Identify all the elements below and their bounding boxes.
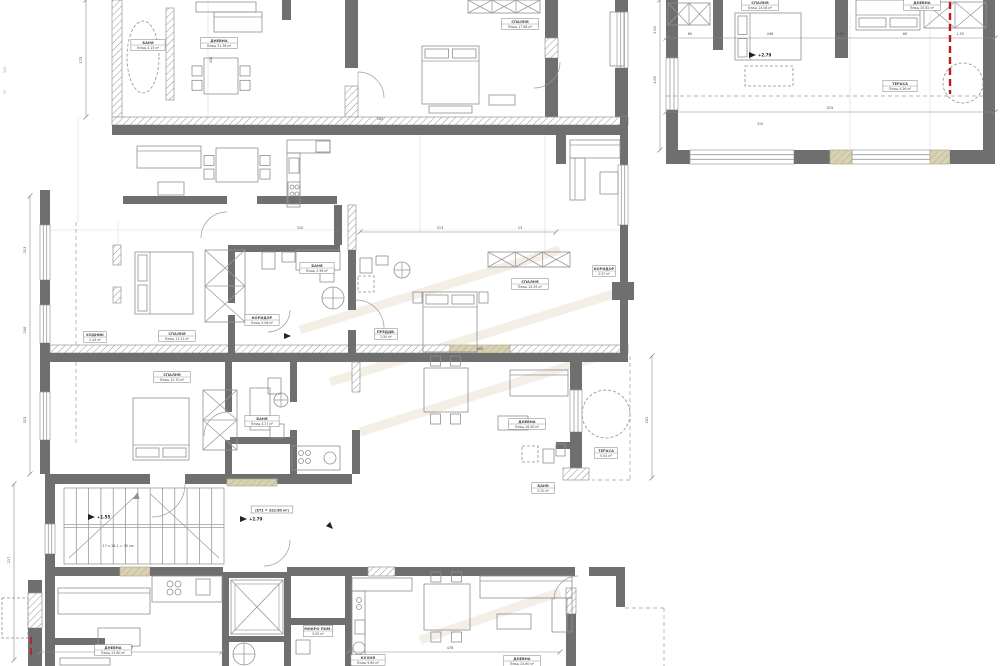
wall-solid xyxy=(290,430,297,474)
room-label: БАНЯПлощ 3.96 м² xyxy=(300,263,334,274)
sofa-symbol xyxy=(214,12,262,32)
svg-text:Площ 14.08 м²: Площ 14.08 м² xyxy=(748,6,773,10)
wall-solid xyxy=(28,580,42,593)
table-and-chairs-symbol xyxy=(192,58,250,94)
circle-symbol xyxy=(324,452,336,464)
dimension-line xyxy=(346,650,563,655)
window-symbol xyxy=(617,12,628,68)
window-symbol xyxy=(666,58,678,110)
dimension-text: 310 xyxy=(297,226,304,230)
appliance-circle-icon xyxy=(322,287,344,309)
wall-solid xyxy=(348,250,356,310)
svg-text:БАНЯ: БАНЯ xyxy=(537,484,549,488)
window-symbol xyxy=(40,392,50,440)
wall-solid xyxy=(556,134,566,164)
dimension-text: 201 xyxy=(645,417,649,424)
appliance-circle-icon xyxy=(394,262,410,278)
furniture-outline xyxy=(158,182,184,195)
svg-text:17 x 18.1 = 30 см: 17 x 18.1 = 30 см xyxy=(103,544,134,548)
door-swing-arc xyxy=(201,212,227,238)
svg-text:ПРЕДДВ.: ПРЕДДВ. xyxy=(377,330,396,334)
svg-text:ДНЕВНА: ДНЕВНА xyxy=(104,646,121,650)
svg-text:ДНЕВНА: ДНЕВНА xyxy=(210,39,227,43)
svg-text:Площ 14.55 м²: Площ 14.55 м² xyxy=(518,285,543,289)
svg-text:Площ 9.80 м²: Площ 9.80 м² xyxy=(357,661,380,665)
bed-symbol xyxy=(135,252,193,314)
furniture-outline xyxy=(289,158,299,173)
svg-text:СПАЛНЯ: СПАЛНЯ xyxy=(168,332,185,336)
level-marker: +1.55 xyxy=(88,514,110,520)
wall-solid xyxy=(713,0,723,50)
svg-text:КОРИДОР: КОРИДОР xyxy=(252,316,273,320)
sofa-symbol xyxy=(570,140,620,158)
dimension-text: 240 xyxy=(23,327,27,334)
svg-text:Площ 20.82 м²: Площ 20.82 м² xyxy=(910,6,935,10)
dimension-line xyxy=(664,110,998,115)
wall-hatched xyxy=(50,345,450,353)
furniture-outline xyxy=(429,106,472,113)
wall-solid xyxy=(50,353,628,362)
wall-hatched-tan xyxy=(830,150,852,164)
room-label: ТЕРАСАПлощ 4.26 м² xyxy=(883,81,917,92)
circle-symbol xyxy=(175,589,181,595)
dimension-text: 525 xyxy=(827,106,834,110)
wall-solid xyxy=(666,150,690,164)
floor-plan-drawing: 604481.80601.355253132403232172012174783… xyxy=(0,0,1000,666)
wall-solid xyxy=(983,0,995,150)
room-label: СПАЛНЯПлощ 14.55 м² xyxy=(512,279,549,290)
room-label: КУХНЯПлощ 9.80 м² xyxy=(351,655,385,666)
wall-solid xyxy=(352,430,360,474)
bed-symbol xyxy=(133,398,189,460)
furniture-outline xyxy=(355,620,365,634)
circle-symbol xyxy=(299,451,304,456)
room-label: МОКРО ПОМ.3.50 м² xyxy=(303,626,333,637)
wall-solid xyxy=(566,614,576,666)
svg-text:ТЕРАСА: ТЕРАСА xyxy=(598,449,614,453)
window-symbol xyxy=(40,305,50,343)
furniture-outline xyxy=(196,579,210,595)
furniture-outline xyxy=(600,172,618,194)
dimension-text: 120 xyxy=(3,67,7,73)
svg-text:283: 283 xyxy=(377,117,383,121)
appliance-circle-icon xyxy=(233,643,255,665)
svg-text:БАНЯ: БАНЯ xyxy=(142,41,154,45)
wall-hatched-tan xyxy=(227,479,277,486)
room-label: БАНЯПлощ 4.17 м² xyxy=(245,416,279,427)
circle-symbol xyxy=(357,605,362,610)
wall-hatched xyxy=(28,593,42,628)
furniture-outline xyxy=(292,446,340,470)
svg-text:МОКРО ПОМ.: МОКРО ПОМ. xyxy=(304,627,332,631)
room-label: ТЕРАСА5.04 м² xyxy=(595,448,617,459)
circle-symbol xyxy=(175,581,181,587)
svg-text:Площ 24.60 м²: Площ 24.60 м² xyxy=(510,662,535,666)
circle-symbol xyxy=(357,598,362,603)
wall-solid xyxy=(794,150,830,164)
wall-solid xyxy=(290,618,345,625)
svg-text:240: 240 xyxy=(209,57,213,63)
svg-text:+1.55: +1.55 xyxy=(97,515,110,520)
furniture-outline xyxy=(196,2,256,12)
room-label: СПАЛНЯПлощ 12.70 м² xyxy=(154,372,191,383)
room-label: ДНЕВНАПлощ 24.60 м² xyxy=(504,656,541,666)
circle-symbol xyxy=(582,390,630,438)
wall-solid xyxy=(222,636,291,642)
wall-solid xyxy=(282,0,291,20)
wall-solid xyxy=(345,0,358,68)
window-symbol xyxy=(852,150,930,164)
svg-text:2.44 м²: 2.44 м² xyxy=(89,338,102,342)
svg-text:ТЕРАСА: ТЕРАСА xyxy=(892,82,908,86)
svg-text:Площ 4.15 м²: Площ 4.15 м² xyxy=(137,46,160,50)
wall-hatched xyxy=(566,588,576,614)
dimension-text: 448 xyxy=(767,32,774,36)
wall-solid xyxy=(40,190,50,225)
furniture-outline xyxy=(152,576,222,602)
dimension-text: 283 xyxy=(377,117,383,121)
furniture-outline xyxy=(2,598,28,638)
room-label: БАНЯ3.20 м² xyxy=(532,483,554,494)
window-symbol xyxy=(618,165,628,225)
dimension-line xyxy=(658,0,663,153)
svg-text:57: 57 xyxy=(3,90,7,94)
table-and-chairs-symbol xyxy=(424,356,468,424)
wall-hatched-tan xyxy=(120,567,150,576)
circle-symbol xyxy=(295,192,299,196)
wardrobe-x-symbol xyxy=(205,250,245,322)
dimension-text: 323 xyxy=(23,417,27,424)
watermark-stripe xyxy=(300,250,560,330)
svg-text:ДНЕВНА: ДНЕВНА xyxy=(518,420,535,424)
wall-solid xyxy=(620,300,628,353)
wall-hatched xyxy=(112,0,122,117)
room-label: КОРИДОР2.57 м² xyxy=(593,266,615,277)
circle-symbol xyxy=(290,192,294,196)
svg-text:120: 120 xyxy=(3,67,7,73)
svg-text:БАНЯ: БАНЯ xyxy=(311,264,323,268)
svg-text:ХОДНИК: ХОДНИК xyxy=(86,333,104,337)
wall-solid xyxy=(616,567,625,607)
svg-text:СПАЛНЯ: СПАЛНЯ xyxy=(163,373,180,377)
furniture-outline xyxy=(352,578,412,591)
svg-text:5.04 м²: 5.04 м² xyxy=(600,454,613,458)
level-marker xyxy=(284,333,291,339)
door-swing-arc xyxy=(264,540,290,566)
circle-symbol xyxy=(167,589,173,595)
wall-solid xyxy=(348,330,356,353)
dimension-line xyxy=(28,194,33,477)
circle-symbol xyxy=(290,185,294,189)
wall-solid xyxy=(222,572,229,666)
window-symbol xyxy=(45,524,55,554)
svg-text:Площ 21.36 м²: Площ 21.36 м² xyxy=(207,44,232,48)
svg-text:+2.79: +2.79 xyxy=(758,53,771,58)
svg-text:455: 455 xyxy=(477,347,484,351)
svg-text:СПАЛНЯ: СПАЛНЯ xyxy=(521,280,538,284)
svg-text:1.35: 1.35 xyxy=(956,32,964,36)
appliance-circle-icon xyxy=(274,393,288,407)
wall-solid xyxy=(334,205,342,245)
svg-text:Площ 26.90 м²: Площ 26.90 м² xyxy=(515,425,540,429)
wardrobe-x-symbol xyxy=(468,0,540,13)
wall-hatched xyxy=(113,245,121,265)
room-label: ПРЕДДВ.2.50 м² xyxy=(375,329,397,340)
wall-solid xyxy=(45,567,55,666)
wall-solid xyxy=(545,58,558,117)
dimension-text: 2.03 xyxy=(653,26,657,34)
svg-text:КОРИДОР: КОРИДОР xyxy=(594,267,615,271)
circle-symbol xyxy=(306,459,311,464)
svg-text:3.50 м²: 3.50 м² xyxy=(312,632,325,636)
furniture-outline xyxy=(296,640,310,654)
svg-text:ДНЕВНА: ДНЕВНА xyxy=(513,657,530,661)
wall-solid xyxy=(150,567,223,576)
svg-text:313: 313 xyxy=(23,247,27,254)
dimension-text: 1.35 xyxy=(956,32,964,36)
svg-text:2.57 м²: 2.57 м² xyxy=(598,272,611,276)
wall-hatched xyxy=(348,205,356,250)
wall-solid xyxy=(620,225,628,282)
wall-solid xyxy=(556,442,570,449)
furniture-outline xyxy=(522,446,538,462)
wall-solid xyxy=(570,362,582,390)
wall-solid xyxy=(225,362,232,412)
wall-solid xyxy=(290,362,297,402)
furniture-outline xyxy=(60,658,110,665)
furniture-outline xyxy=(287,140,330,153)
wall-solid xyxy=(545,0,558,38)
watermark-stripe xyxy=(360,356,600,432)
wall-solid xyxy=(950,150,995,164)
svg-text:КУХНЯ: КУХНЯ xyxy=(361,656,375,660)
dimension-text: 455 xyxy=(477,347,484,351)
wall-solid xyxy=(257,196,337,204)
furniture-outline xyxy=(316,141,330,152)
dimension-text: 310 xyxy=(757,122,763,126)
svg-text:1.80: 1.80 xyxy=(836,32,844,36)
furniture-outline xyxy=(489,95,515,105)
wall-hatched xyxy=(166,8,174,100)
svg-text:217: 217 xyxy=(7,557,11,564)
sofa-symbol xyxy=(58,588,150,614)
wall-hatched-tan xyxy=(930,150,950,164)
dimension-text: 17 x 18.1 = 30 см xyxy=(103,544,134,548)
wall-solid xyxy=(345,576,352,666)
window-symbol xyxy=(570,390,582,432)
svg-text:2.03: 2.03 xyxy=(653,26,657,34)
wall-solid xyxy=(666,110,678,150)
floor-plan-page: 604481.80601.355253132403232172012174783… xyxy=(0,0,1000,666)
room-label: ДНЕВНАПлощ 21.36 м² xyxy=(201,38,238,49)
dimension-text: 217 xyxy=(7,557,11,564)
sofa-symbol xyxy=(570,158,585,200)
furniture-outline xyxy=(543,449,554,463)
table-and-chairs-symbol xyxy=(204,148,270,182)
wall-solid xyxy=(28,628,42,666)
dimension-text: 1.05 xyxy=(653,76,657,84)
dimension-text: 313 xyxy=(437,226,444,230)
floor-area-note: (ЕТ1 = 323.80 м²) xyxy=(251,506,293,513)
room-label: ДНЕВНАПлощ 23.80 м² xyxy=(95,645,132,656)
svg-text:(ЕТ1 = 323.80 м²): (ЕТ1 = 323.80 м²) xyxy=(255,508,289,512)
wall-solid xyxy=(50,638,105,645)
svg-text:310: 310 xyxy=(297,226,304,230)
svg-text:60: 60 xyxy=(903,32,907,36)
furniture-outline xyxy=(262,252,275,269)
wall-solid xyxy=(615,0,628,12)
door-swing-arc xyxy=(358,72,384,98)
svg-text:Площ 5.06 м²: Площ 5.06 м² xyxy=(251,321,274,325)
level-marker xyxy=(326,522,335,531)
wall-solid xyxy=(123,196,227,204)
svg-text:60: 60 xyxy=(688,32,692,36)
level-marker: +2.79 xyxy=(240,516,262,522)
svg-text:313: 313 xyxy=(437,226,444,230)
wall-solid xyxy=(615,68,628,117)
svg-text:478: 478 xyxy=(447,646,454,650)
wall-solid xyxy=(45,474,150,484)
wall-solid xyxy=(112,125,628,135)
wardrobe-x-symbol xyxy=(231,580,283,634)
svg-text:3.20 м²: 3.20 м² xyxy=(537,489,550,493)
dimension-line xyxy=(650,354,655,481)
svg-text:175: 175 xyxy=(79,57,83,64)
furniture-outline xyxy=(358,276,374,292)
dimension-text: 478 xyxy=(447,646,454,650)
dimension-text: 60 xyxy=(903,32,907,36)
wall-solid xyxy=(40,280,50,305)
wall-hatched xyxy=(368,567,395,576)
wall-solid xyxy=(45,554,55,567)
wall-solid xyxy=(589,567,616,576)
wall-solid xyxy=(395,567,575,576)
wall-solid xyxy=(287,567,368,576)
svg-text:525: 525 xyxy=(827,106,834,110)
wall-solid xyxy=(570,432,582,468)
svg-text:Площ 4.17 м²: Площ 4.17 м² xyxy=(251,422,274,426)
furniture-outline xyxy=(282,252,295,262)
dimension-text: 57 xyxy=(3,90,7,94)
svg-text:Площ 4.26 м²: Площ 4.26 м² xyxy=(889,87,912,91)
room-label: СПАЛНЯПлощ 14.08 м² xyxy=(742,0,779,11)
svg-text:201: 201 xyxy=(645,417,649,424)
wall-solid xyxy=(835,0,848,58)
room-label: БАНЯПлощ 4.15 м² xyxy=(131,40,165,51)
sofa-symbol xyxy=(137,146,201,168)
svg-text:310: 310 xyxy=(757,122,763,126)
dimension-line xyxy=(84,0,89,120)
room-label: ДНЕВНАПлощ 26.90 м² xyxy=(509,419,546,430)
circle-symbol xyxy=(167,581,173,587)
dimension-text: 60 xyxy=(688,32,692,36)
svg-text:323: 323 xyxy=(23,417,27,424)
svg-text:Площ 13.21 м²: Площ 13.21 м² xyxy=(165,337,190,341)
svg-text:Площ 12.70 м²: Площ 12.70 м² xyxy=(160,378,185,382)
svg-text:23: 23 xyxy=(518,226,522,230)
dimension-text: 240 xyxy=(209,57,213,63)
room-label: ДНЕВНАПлощ 20.82 м² xyxy=(904,0,941,11)
room-label: ХОДНИК2.44 м² xyxy=(84,332,106,343)
window-symbol xyxy=(690,150,794,164)
wall-hatched xyxy=(510,345,628,353)
dimension-text: 175 xyxy=(79,57,83,64)
furniture-outline xyxy=(376,256,388,265)
wall-solid xyxy=(45,484,55,524)
wall-solid xyxy=(222,572,291,578)
dimension-text: 313 xyxy=(23,247,27,254)
svg-text:СПАЛНЯ: СПАЛНЯ xyxy=(751,1,768,5)
wall-solid xyxy=(40,440,50,474)
wall-hatched xyxy=(563,468,589,480)
furniture-outline xyxy=(479,292,488,303)
wall-solid xyxy=(228,315,235,353)
svg-text:+2.79: +2.79 xyxy=(249,517,262,522)
wall-solid xyxy=(612,282,634,300)
circle-symbol xyxy=(306,451,311,456)
dimension-line xyxy=(12,482,17,663)
dimension-text: 23 xyxy=(518,226,522,230)
svg-text:СПАЛНЯ: СПАЛНЯ xyxy=(511,20,528,24)
window-symbol xyxy=(40,225,50,280)
wall-hatched xyxy=(345,86,358,117)
circle-symbol xyxy=(299,459,304,464)
room-label: СПАЛНЯПлощ 17.88 м² xyxy=(502,19,539,30)
room-label: КОРИДОРПлощ 5.06 м² xyxy=(245,315,279,326)
svg-text:Площ 3.96 м²: Площ 3.96 м² xyxy=(306,269,329,273)
wall-solid xyxy=(40,343,50,363)
svg-text:ДНЕВНА: ДНЕВНА xyxy=(913,1,930,5)
wall-hatched xyxy=(545,38,558,58)
dimension-text: 1.80 xyxy=(836,32,844,36)
svg-text:Площ 17.88 м²: Площ 17.88 м² xyxy=(508,25,533,29)
wall-hatched xyxy=(112,117,628,125)
wall-hatched xyxy=(113,287,121,303)
room-label: СПАЛНЯПлощ 13.21 м² xyxy=(159,331,196,342)
svg-text:448: 448 xyxy=(767,32,774,36)
wall-solid xyxy=(40,362,50,392)
furniture-outline xyxy=(360,258,372,273)
svg-text:240: 240 xyxy=(23,327,27,334)
wall-solid xyxy=(290,474,352,484)
svg-text:1.05: 1.05 xyxy=(653,76,657,84)
circle-symbol xyxy=(295,185,299,189)
furniture-outline xyxy=(745,66,793,86)
wall-hatched xyxy=(352,362,360,392)
svg-text:2.50 м²: 2.50 м² xyxy=(380,335,393,339)
svg-text:Площ 23.80 м²: Площ 23.80 м² xyxy=(101,651,126,655)
wall-solid xyxy=(284,572,291,666)
wall-solid xyxy=(235,245,340,252)
staircase-symbol xyxy=(64,488,224,564)
svg-text:БАНЯ: БАНЯ xyxy=(256,417,268,421)
wall-solid xyxy=(55,567,120,576)
level-marker: +2.79 xyxy=(749,52,771,58)
wall-solid xyxy=(620,117,628,165)
bath-tub-symbol xyxy=(127,21,159,93)
bed-symbol xyxy=(422,46,479,104)
